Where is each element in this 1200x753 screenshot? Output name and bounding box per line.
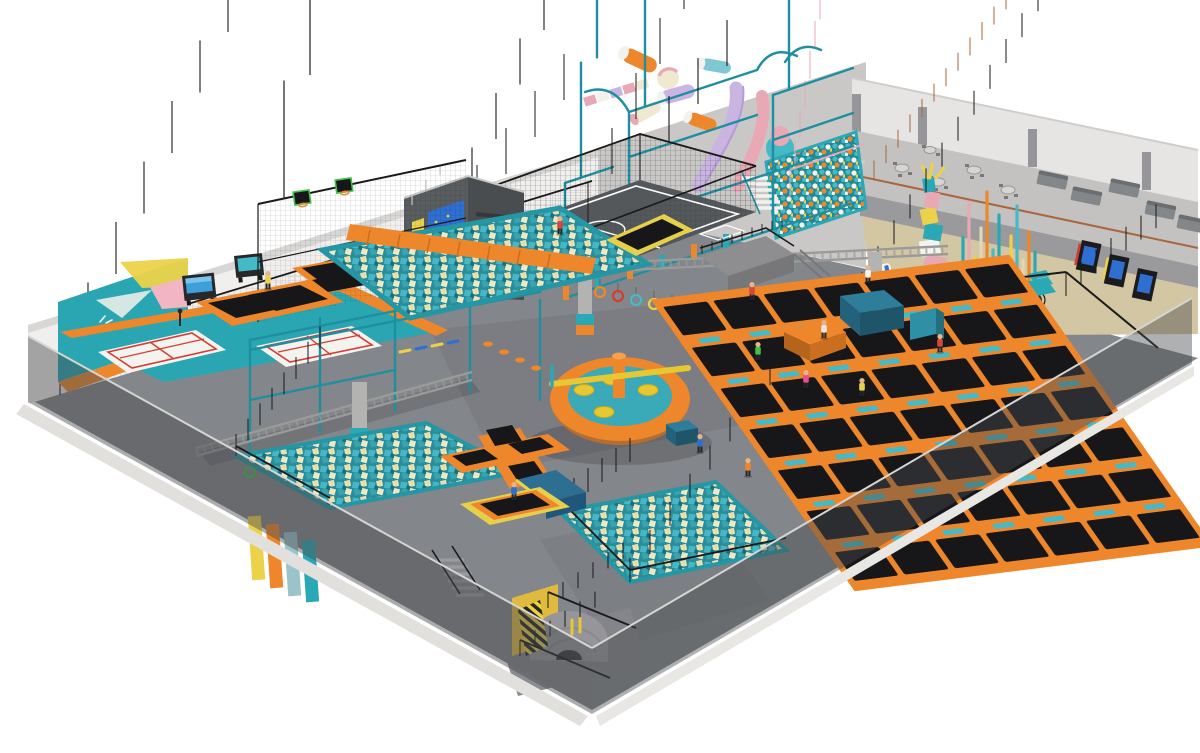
play-panels bbox=[583, 78, 649, 106]
trampoline-park-render: Indoor trampoline park and adventure pla… bbox=[0, 0, 1200, 753]
render-image: Indoor trampoline park and adventure pla… bbox=[0, 0, 1200, 753]
